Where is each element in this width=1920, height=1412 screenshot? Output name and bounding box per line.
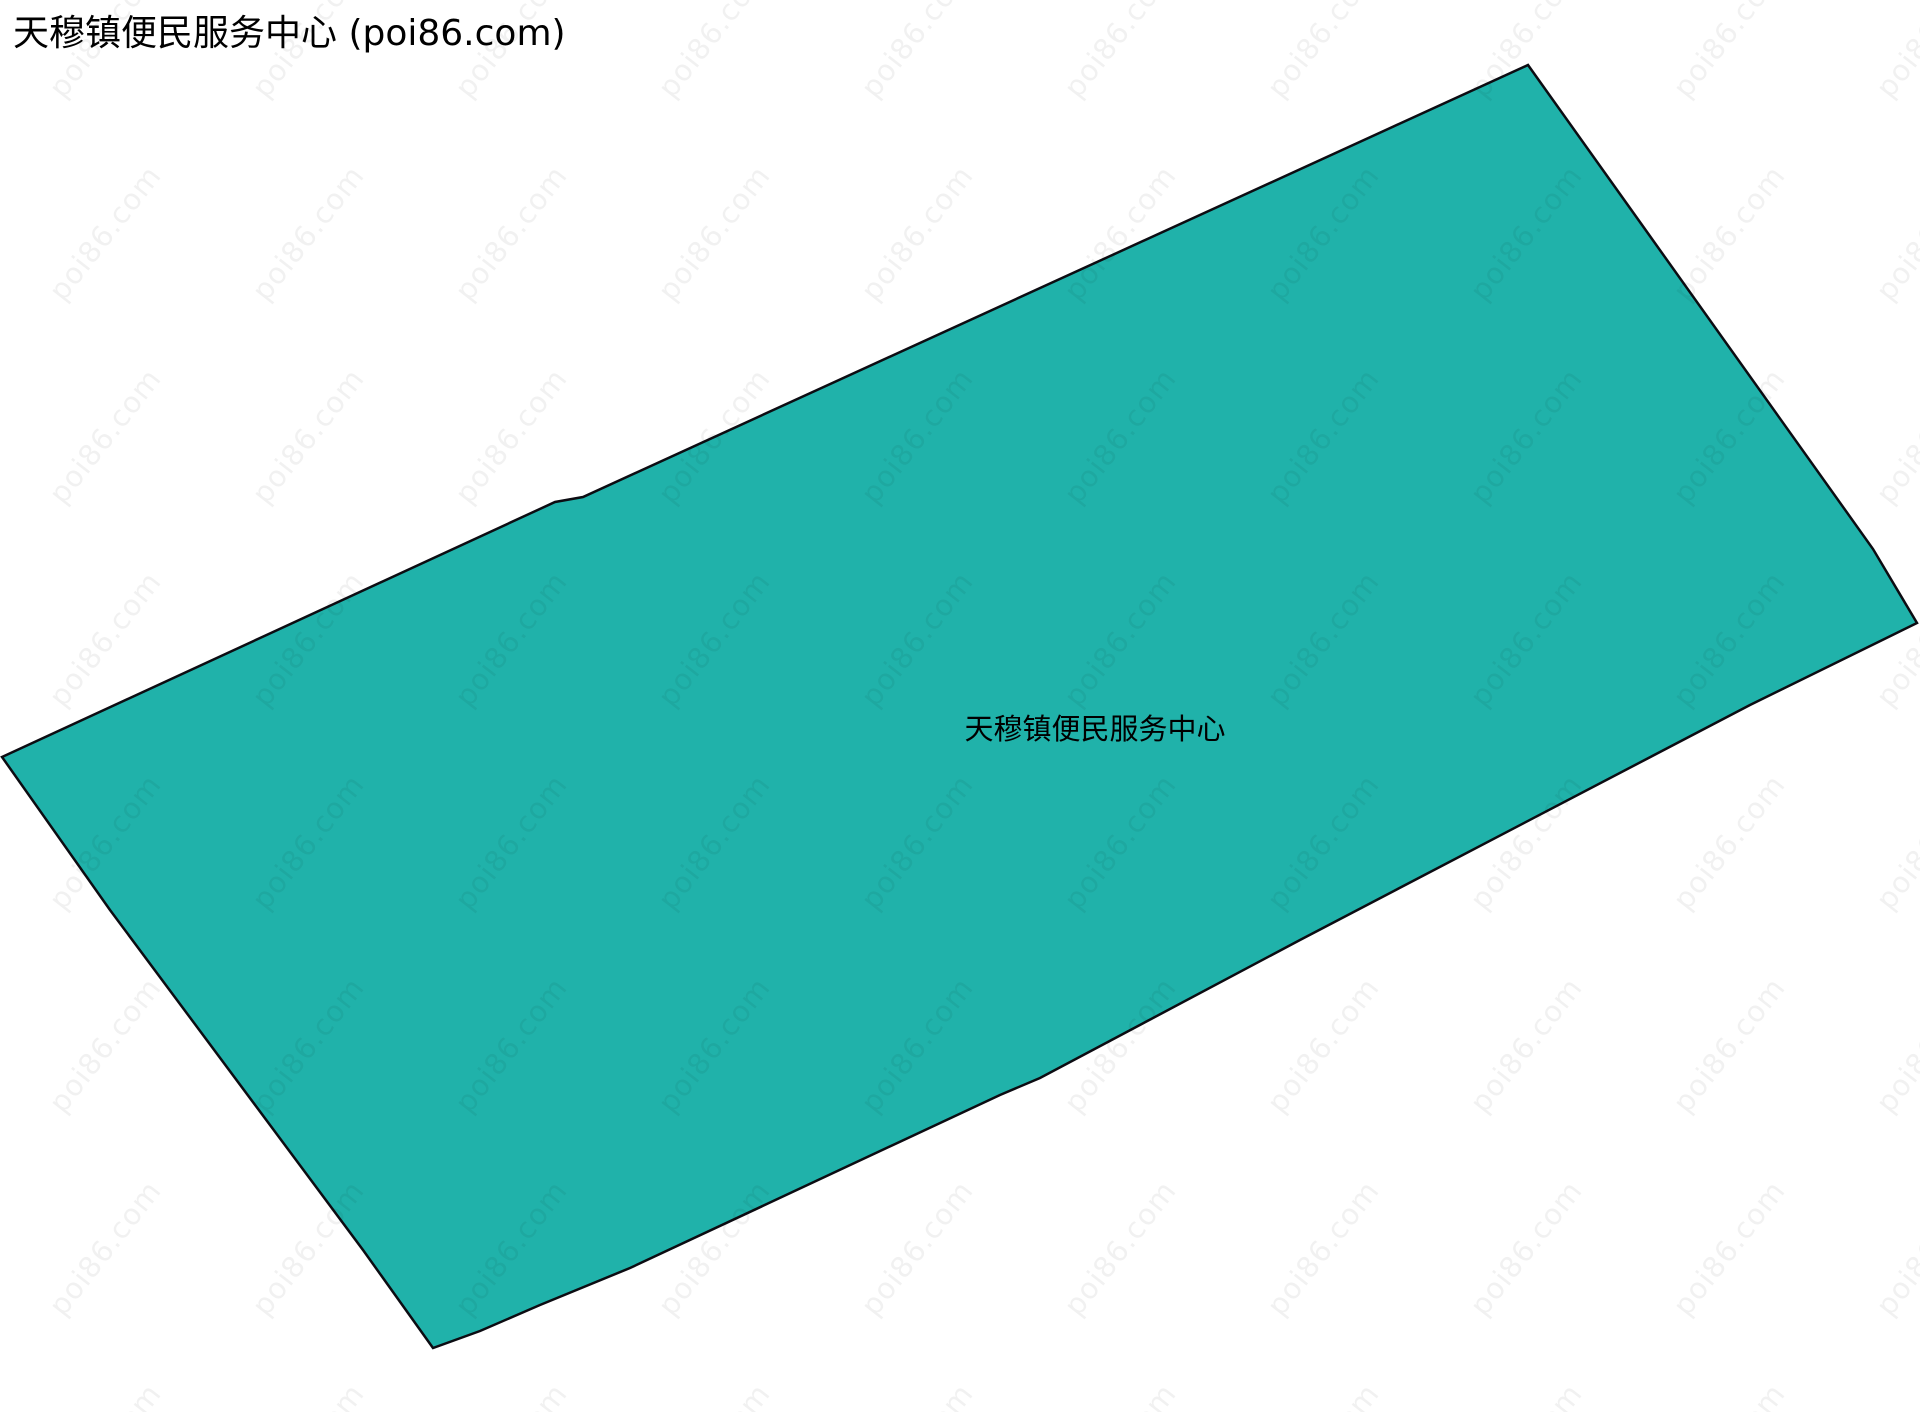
region-polygon-svg [0,0,1920,1412]
region-polygon [2,65,1917,1348]
page-title: 天穆镇便民服务中心 (poi86.com) [13,12,566,55]
map-canvas: poi86.compoi86.compoi86.compoi86.compoi8… [0,0,1920,1412]
region-label: 天穆镇便民服务中心 [964,706,1225,748]
